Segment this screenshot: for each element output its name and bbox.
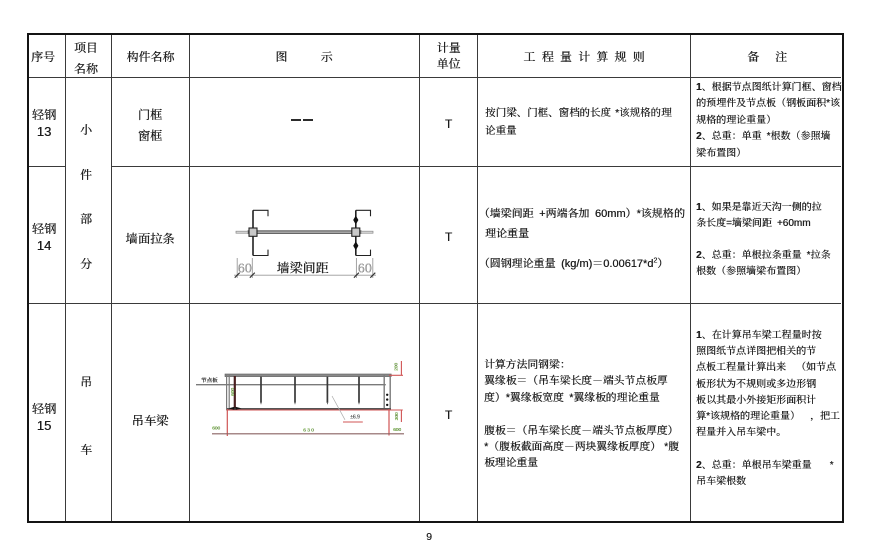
svg-text:60: 60 xyxy=(238,262,252,276)
svg-text:节点板: 节点板 xyxy=(200,376,218,384)
svg-text:60: 60 xyxy=(358,262,372,276)
svg-text:600: 600 xyxy=(229,388,236,396)
svg-text:300: 300 xyxy=(393,412,400,420)
svg-text:±6.9: ±6.9 xyxy=(350,414,360,421)
svg-text:200: 200 xyxy=(393,363,400,371)
svg-text:墙梁间距: 墙梁间距 xyxy=(276,258,328,277)
svg-text:600: 600 xyxy=(393,427,401,433)
svg-text:6 3 0: 6 3 0 xyxy=(303,428,314,434)
svg-text:600: 600 xyxy=(212,426,220,432)
